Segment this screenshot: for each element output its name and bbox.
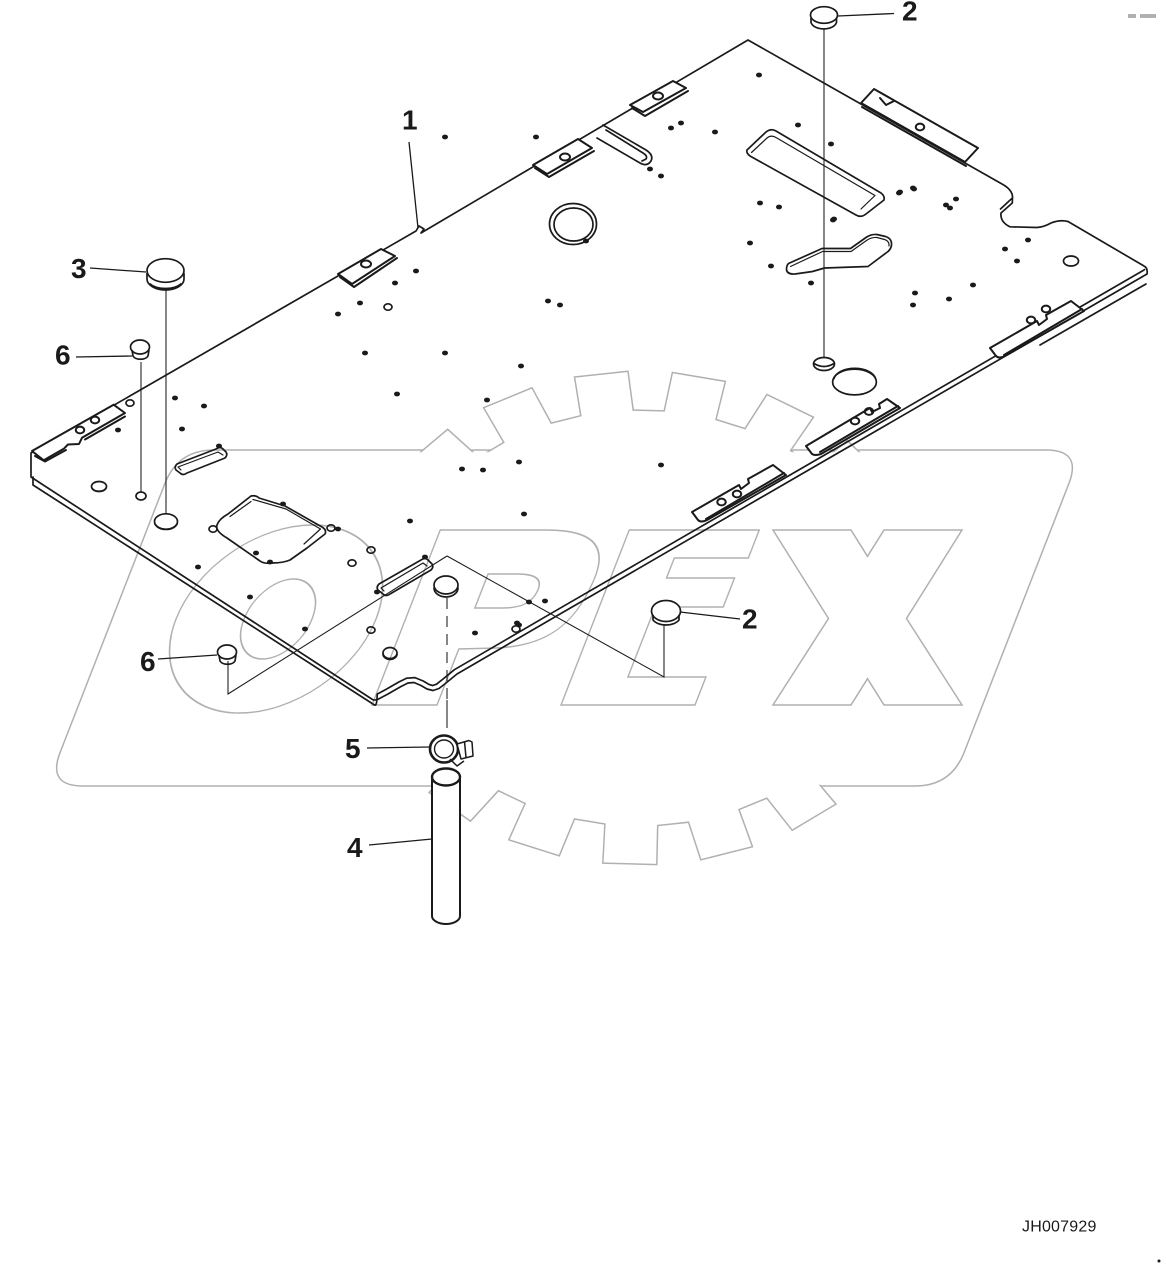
- svg-text:6: 6: [55, 340, 71, 371]
- svg-text:1: 1: [402, 105, 418, 136]
- svg-text:2: 2: [902, 0, 918, 27]
- svg-text:4: 4: [347, 832, 363, 863]
- svg-text:3: 3: [71, 253, 87, 284]
- svg-text:JH007929: JH007929: [1022, 1219, 1097, 1236]
- svg-text:5: 5: [345, 733, 361, 764]
- svg-text:2: 2: [742, 604, 758, 635]
- svg-text:6: 6: [140, 646, 156, 677]
